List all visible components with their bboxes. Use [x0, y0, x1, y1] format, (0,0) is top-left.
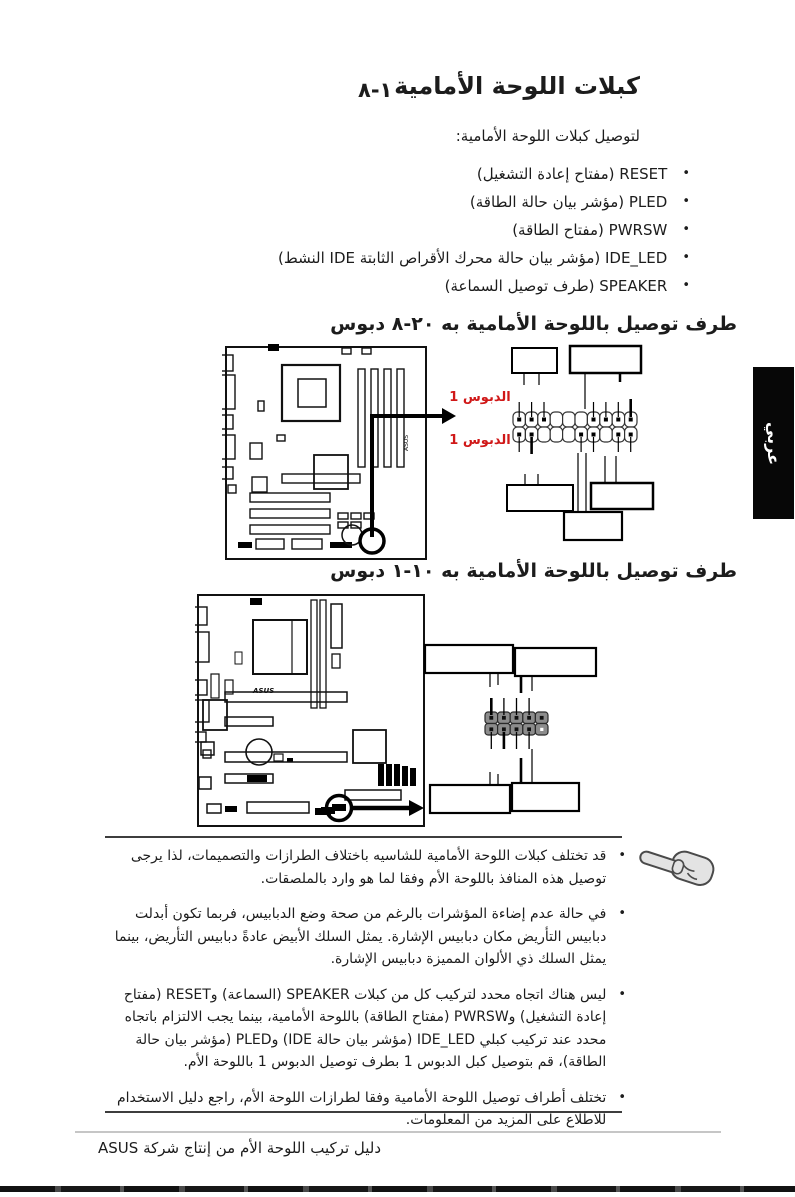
- diagram-20pin: ASUS: [222, 343, 657, 570]
- arrowhead-icon: [442, 408, 456, 424]
- cable-label: PLED (مؤشر بيان حالة الطاقة): [470, 188, 667, 216]
- callout-arrow: [352, 800, 424, 816]
- bullet-icon: •: [618, 1087, 626, 1132]
- section-heading-10pin: طرف توصيل باللوحة الأمامية به ١٠-١ دبوس: [330, 560, 737, 582]
- arabic-side-tab: عربي: [753, 367, 794, 519]
- note-text: قد تختلف كبلات اللوحة الأمامية للشاسيه ب…: [104, 845, 606, 890]
- pin-count: ٢٠-٨: [392, 313, 435, 335]
- pin1-label-bottom: الدبوس 1: [449, 433, 511, 448]
- list-item: •SPEAKER (طرف توصيل السماعة): [278, 272, 690, 300]
- cable-list: •RESET (مفتاح إعادة التشغيل) •PLED (مؤشر…: [278, 160, 690, 300]
- section-heading-20pin: طرف توصيل باللوحة الأمامية به ٢٠-٨ دبوس: [330, 313, 737, 335]
- note-text: في حالة عدم إضاءة المؤشرات بالرغم من صحة…: [104, 903, 606, 971]
- pin-header-20pin: [513, 399, 637, 454]
- list-item: •RESET (مفتاح إعادة التشغيل): [278, 160, 690, 188]
- pin-count: ١٠-١: [392, 560, 435, 582]
- note-item: •ليس هناك اتجاه محدد لتركيب كل من كبلات …: [104, 984, 626, 1074]
- heading-text: دبوس: [330, 313, 385, 335]
- diagram-10pin: ASUS: [195, 592, 615, 837]
- header-cells: [485, 712, 548, 735]
- bullet-icon: •: [682, 188, 690, 216]
- section-number: ١-٨: [358, 78, 392, 102]
- note-text: تختلف أطراف توصيل اللوحة الأمامية وفقا ل…: [104, 1087, 606, 1132]
- footer-text: دليل تركيب اللوحة الأم من إنتاج شركة ASU…: [98, 1139, 381, 1157]
- arrowhead-icon: [409, 800, 424, 816]
- cpu-socket: [282, 365, 340, 421]
- side-tab-label: عربي: [764, 421, 783, 464]
- bullet-icon: •: [618, 903, 626, 971]
- note-item: •في حالة عدم إضاءة المؤشرات بالرغم من صح…: [104, 903, 626, 971]
- pin-header-10pin: [485, 698, 548, 749]
- bullet-icon: •: [618, 845, 626, 890]
- missing-pin-marker: [540, 728, 543, 731]
- notes-divider-top: [105, 836, 622, 838]
- intro-text: لتوصيل كبلات اللوحة الأمامية:: [456, 127, 640, 145]
- note-item: •قد تختلف كبلات اللوحة الأمامية للشاسيه …: [104, 845, 626, 890]
- asus-board-logo: ASUS: [403, 435, 410, 451]
- cable-label: IDE_LED (مؤشر بيان حالة محرك الأقراص الث…: [278, 244, 667, 272]
- bullet-icon: •: [682, 244, 690, 272]
- list-item: •PWRSW (مفتاح الطاقة): [278, 216, 690, 244]
- callout-arrow: [370, 408, 456, 537]
- asus-board-logo: ASUS: [252, 687, 274, 695]
- bullet-icon: •: [618, 984, 626, 1074]
- page-bottom-edge: [0, 1186, 795, 1192]
- bullet-icon: •: [682, 160, 690, 188]
- heading-text: طرف توصيل باللوحة الأمامية به: [441, 313, 737, 335]
- cpu-socket: [253, 620, 307, 674]
- cable-label: SPEAKER (طرف توصيل السماعة): [445, 272, 668, 300]
- pointing-hand-icon: [636, 840, 720, 906]
- cable-label: RESET (مفتاح إعادة التشغيل): [477, 160, 667, 188]
- notes-list: •قد تختلف كبلات اللوحة الأمامية للشاسيه …: [104, 845, 626, 1145]
- motherboard-outline-20pin: ASUS: [222, 344, 426, 559]
- io-header-bank: [378, 764, 416, 786]
- footer-rule: [75, 1131, 721, 1133]
- list-item: •PLED (مؤشر بيان حالة الطاقة): [278, 188, 690, 216]
- heading-text: دبوس: [330, 560, 385, 582]
- note-item: •تختلف أطراف توصيل اللوحة الأمامية وفقا …: [104, 1087, 626, 1132]
- heading-text: طرف توصيل باللوحة الأمامية به: [441, 560, 737, 582]
- list-item: •IDE_LED (مؤشر بيان حالة محرك الأقراص ال…: [278, 244, 690, 272]
- page-title: كبلات اللوحة الأمامية: [394, 72, 640, 100]
- pin1-label-top: الدبوس 1: [449, 390, 511, 405]
- bullet-icon: •: [682, 216, 690, 244]
- note-text: ليس هناك اتجاه محدد لتركيب كل من كبلات S…: [104, 984, 606, 1074]
- pin-stems: [491, 698, 529, 749]
- cable-label: PWRSW (مفتاح الطاقة): [512, 216, 667, 244]
- manual-page: ١-٨ كبلات اللوحة الأمامية لتوصيل كبلات ا…: [0, 0, 795, 1197]
- motherboard-outline-10pin: ASUS: [195, 595, 424, 826]
- bullet-icon: •: [682, 272, 690, 300]
